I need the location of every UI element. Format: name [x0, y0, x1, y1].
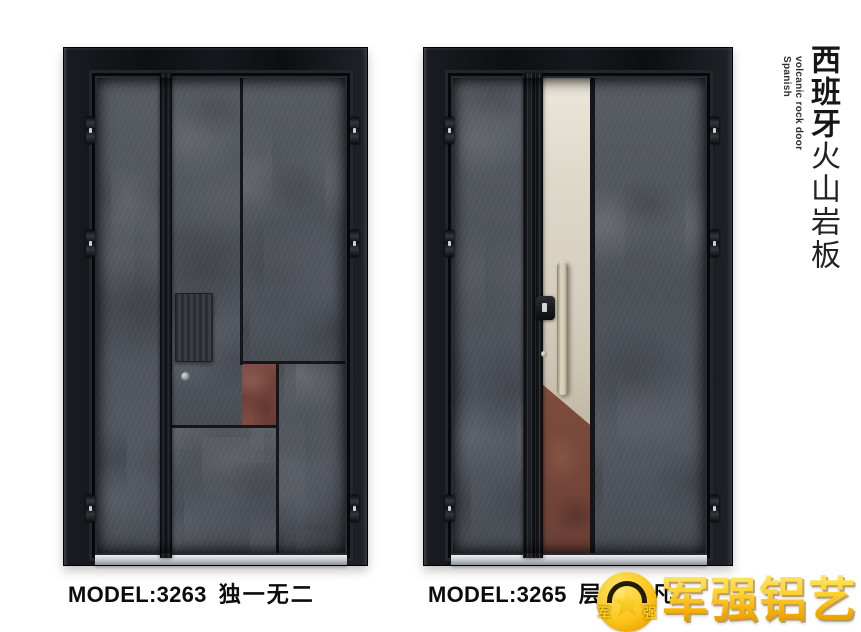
brand-name: 军强铝艺 — [661, 570, 857, 630]
brand-emblem-icon: 军 强 — [597, 572, 657, 632]
rock-panel — [278, 363, 345, 553]
panel-seam — [172, 425, 279, 428]
panel-seam — [590, 78, 595, 553]
door-3263 — [63, 47, 368, 566]
emblem-char-right: 强 — [643, 603, 657, 623]
catalog-page: MODEL:3263独一无二 MODEL:3265层山不凡 西班牙火山岩板 Sp… — [0, 0, 861, 632]
smart-lock — [536, 296, 555, 320]
hinge-icon — [445, 117, 454, 144]
threshold — [95, 555, 347, 565]
hinge-icon — [710, 117, 719, 144]
door-surface — [453, 78, 705, 553]
brand-logo: 军 强 军强铝艺 — [597, 570, 857, 632]
series-title-vertical: 西班牙火山岩板 — [805, 44, 839, 272]
doorbell-button — [541, 351, 547, 357]
panel-seam — [240, 78, 243, 365]
hinge-icon — [710, 495, 719, 522]
hinge-icon — [445, 495, 454, 522]
series-subtitle-en-line2: volcanic rock door — [793, 56, 804, 150]
rock-panel — [97, 78, 161, 553]
hinge-icon — [350, 495, 359, 522]
pull-handle — [557, 261, 568, 395]
model-label-3263: MODEL:3263独一无二 — [68, 577, 315, 609]
door-stile — [160, 73, 172, 558]
series-title-bold: 西班牙 — [805, 44, 840, 140]
model-name: 独一无二 — [219, 583, 315, 608]
hinge-icon — [86, 495, 95, 522]
series-title-light: 火山岩板 — [805, 140, 840, 272]
lock-plate — [175, 293, 213, 362]
door-3265 — [423, 47, 733, 566]
hinge-icon — [350, 230, 359, 257]
rock-panel — [453, 78, 525, 553]
hinge-icon — [710, 230, 719, 257]
rock-panel — [595, 78, 705, 553]
keyhole — [181, 372, 190, 381]
threshold — [451, 555, 707, 565]
hinge-icon — [86, 230, 95, 257]
hinge-icon — [86, 117, 95, 144]
series-subtitle-en-line1: Spanish — [781, 56, 792, 97]
rock-panel — [242, 78, 345, 363]
hinge-icon — [445, 230, 454, 257]
door-surface — [97, 78, 345, 553]
model-number: MODEL:3263 — [68, 582, 207, 607]
emblem-char-left: 军 — [597, 603, 611, 623]
panel-seam — [240, 361, 345, 364]
copper-accent-panel — [242, 363, 278, 427]
panel-seam — [276, 363, 279, 553]
model-number: MODEL:3265 — [428, 582, 567, 607]
rock-panel — [172, 427, 278, 553]
hinge-icon — [350, 117, 359, 144]
